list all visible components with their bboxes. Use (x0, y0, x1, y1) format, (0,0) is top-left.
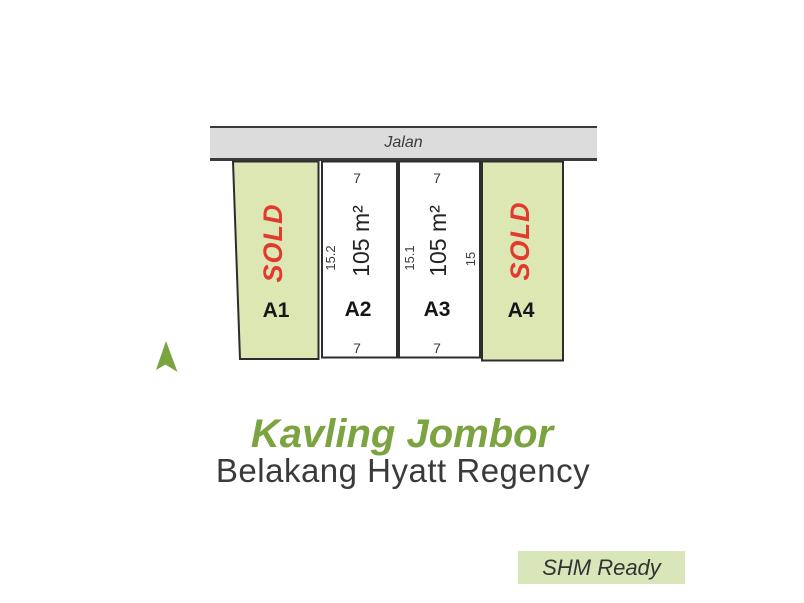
plot-a3-area: 105 m² (425, 181, 451, 301)
plot-a2-depth: 15.2 (324, 228, 338, 288)
plot-a2-area: 105 m² (348, 181, 374, 301)
flyer-canvas: Jalan SOLD A1 7 105 m² 15.2 A2 7 7 105 m… (0, 0, 804, 603)
plot-a4-depth: 15 (464, 229, 478, 289)
plot-a1-id: A1 (246, 300, 306, 322)
page-title: Kavling Jombor (102, 412, 702, 457)
plot-a3-frontage-bottom: 7 (417, 340, 457, 356)
shm-ready-badge-label: SHM Ready (542, 555, 661, 581)
plot-a1-sold-label: SOLD (259, 183, 287, 303)
north-arrow-icon (156, 341, 178, 372)
plot-map (0, 0, 804, 603)
shm-ready-badge: SHM Ready (518, 551, 685, 584)
plot-a2-frontage-bottom: 7 (337, 340, 377, 356)
plot-a3-depth: 15.1 (403, 228, 417, 288)
plot-a4-sold-label: SOLD (506, 181, 534, 301)
page-subtitle: Belakang Hyatt Regency (103, 452, 703, 490)
plot-a3-id: A3 (407, 299, 467, 321)
plot-a4-id: A4 (491, 300, 551, 322)
plot-a2-id: A2 (328, 299, 388, 321)
